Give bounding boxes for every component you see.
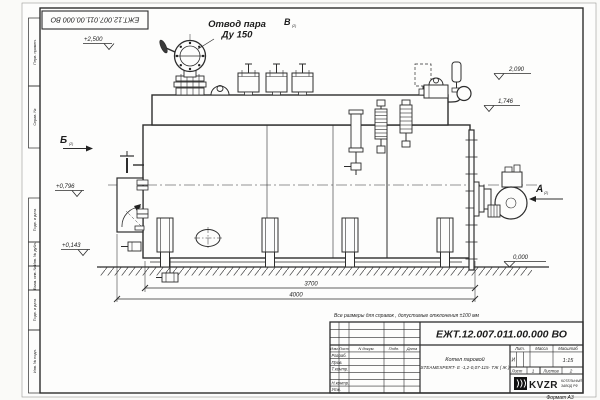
view-v-sheet-ref: (2) xyxy=(292,24,296,28)
view-v-label: В xyxy=(284,17,291,27)
frame-label-podp-data-1: Подп. и дата xyxy=(33,208,37,231)
dim-3700-text: 3700 xyxy=(304,282,318,288)
elev-1746-text: 1,746 xyxy=(498,99,514,105)
logo-name: KVZR xyxy=(529,380,558,391)
view-a-label: А xyxy=(535,184,543,195)
product-name: Котел паровой xyxy=(445,356,484,363)
view-b-label: Б xyxy=(60,135,67,146)
view-a-sheet-ref: (2) xyxy=(544,191,548,195)
col-izm: Изм. xyxy=(330,346,339,351)
drawing-canvas: Перв. примен. Справ. № Подп. и дата Инв.… xyxy=(0,0,600,400)
reference-note: Все размеры для справок , допустимые отк… xyxy=(334,313,480,319)
product-model: STEAMEXPERT- Е -1,2-0,07-115- ТЖ ( Ж ) xyxy=(420,365,510,370)
elev-2090-text: 2,090 xyxy=(508,67,525,73)
sheet-label: Лист xyxy=(511,368,523,373)
role-prov: Пров. xyxy=(332,360,343,365)
frame-label-vzam-inv: Взам. инв. № xyxy=(33,266,37,290)
elev-zero-text: 0,000 xyxy=(513,255,529,261)
level-probe xyxy=(452,62,461,82)
frame-label-perv-primen: Перв. примен. xyxy=(33,39,37,64)
col-dokum: N докум. xyxy=(358,346,374,351)
doc-number-top: ЕЖТ.12.007.011.00.000 ВО xyxy=(50,16,139,25)
col-list: Лист xyxy=(338,346,350,351)
scale-header: Масштаб xyxy=(558,346,578,351)
front-door xyxy=(117,178,148,232)
col-data: Дата xyxy=(406,346,418,351)
scale-value: 1:15 xyxy=(563,358,575,364)
frame-label-podp-data-2: Подп. и дата xyxy=(33,298,37,321)
dim-4000-text: 4000 xyxy=(289,293,303,299)
role-utv: Утв. xyxy=(332,387,342,392)
logo-caption-1: КОТЕЛЬНЫЙ xyxy=(561,379,582,383)
burner-motor xyxy=(502,172,522,187)
mass-header: Масса xyxy=(535,346,548,351)
col-podp: Подп. xyxy=(389,346,400,351)
frame-label-inv-podl: Инв. № подл. xyxy=(33,349,37,373)
sheets-label: Листов xyxy=(542,368,559,373)
elev-143-text: +0,143 xyxy=(62,243,81,249)
role-tkontr: Т.контр. xyxy=(332,367,349,372)
elev-796-text: +0,796 xyxy=(56,184,75,190)
role-nkontr: Н.контр. xyxy=(332,380,350,385)
blueprint-sheet: Перв. примен. Справ. № Подп. и дата Инв.… xyxy=(0,0,600,400)
view-b-sheet-ref: (2) xyxy=(69,142,73,146)
frame-label-sprav: Справ. № xyxy=(33,108,37,125)
frame-label-inv-dubl: Инв. № дубл. xyxy=(33,242,37,266)
role-razrab: Разраб. xyxy=(332,353,347,358)
sheet-value: 1 xyxy=(532,368,535,373)
format-label: Формат А3 xyxy=(546,395,574,400)
doc-number: ЕЖТ.12.007.011.00.000 ВО xyxy=(436,329,567,341)
lit-header: Лит. xyxy=(514,346,525,351)
steam-outlet-text-2: Ду 150 xyxy=(221,30,254,41)
lit-value: И xyxy=(512,358,516,364)
steam-outlet-text-1: Отвод пара xyxy=(208,19,266,30)
logo-caption-2: ЗАВОД РФ xyxy=(561,384,578,388)
sheets-value: 2 xyxy=(569,368,573,373)
elev-2500-text: +2,500 xyxy=(84,37,103,43)
boiler-body xyxy=(143,125,470,258)
